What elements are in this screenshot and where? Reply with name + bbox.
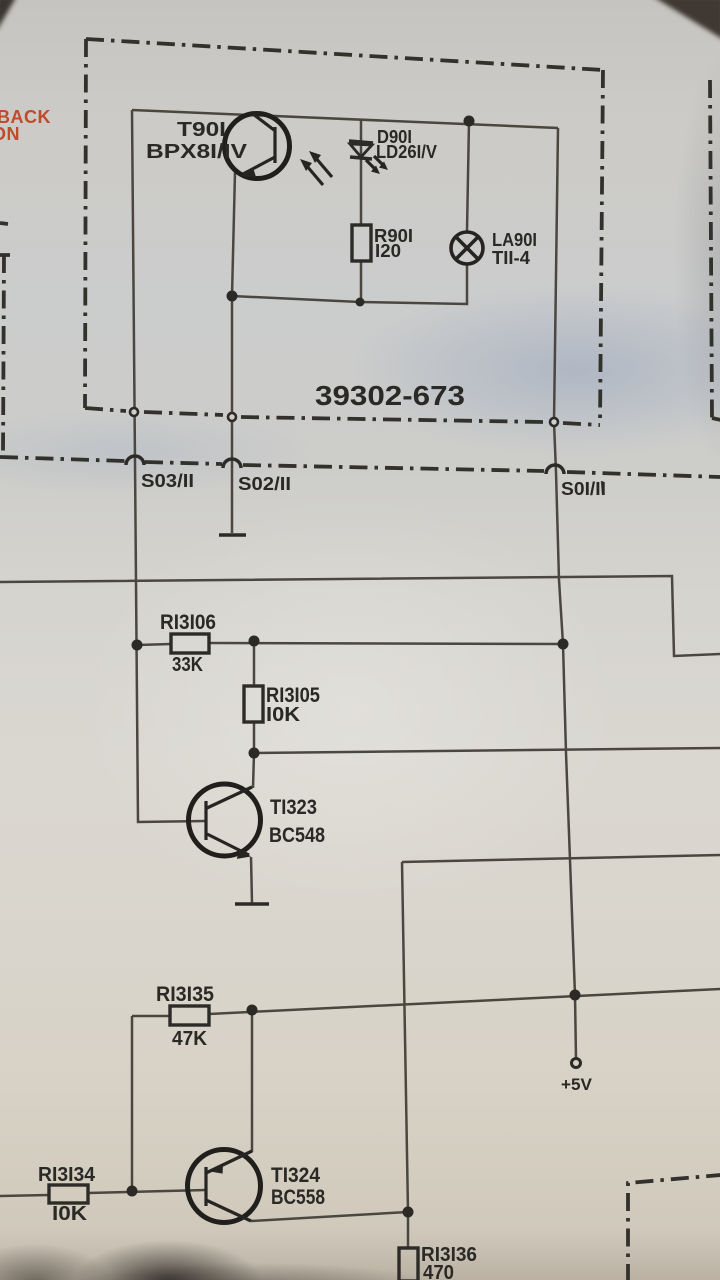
svg-text:BC548: BC548 <box>269 824 325 847</box>
svg-text:ON: ON <box>0 124 20 144</box>
svg-text:TII-4: TII-4 <box>492 248 530 268</box>
svg-text:I20: I20 <box>375 241 401 261</box>
svg-text:RI3I35: RI3I35 <box>156 983 214 1006</box>
svg-text:470: 470 <box>423 1262 454 1280</box>
svg-text:S02/II: S02/II <box>238 473 291 494</box>
svg-text:39302-673: 39302-673 <box>315 380 465 411</box>
svg-text:RI3I06: RI3I06 <box>160 611 216 634</box>
svg-text:BC558: BC558 <box>271 1186 325 1209</box>
svg-text:TI323: TI323 <box>270 796 317 819</box>
svg-text:S0I/II: S0I/II <box>561 478 606 499</box>
svg-text:+5V: +5V <box>561 1075 593 1094</box>
svg-text:RI3I34: RI3I34 <box>38 1164 96 1186</box>
svg-text:S03/II: S03/II <box>141 470 194 491</box>
svg-text:TI324: TI324 <box>271 1164 320 1187</box>
svg-text:T90I: T90I <box>177 119 226 141</box>
svg-text:BPX8I/IV: BPX8I/IV <box>146 141 248 163</box>
svg-text:LA90I: LA90I <box>492 230 537 250</box>
svg-text:I0K: I0K <box>52 1203 88 1225</box>
svg-text:33K: 33K <box>172 654 203 676</box>
svg-text:LD26I/V: LD26I/V <box>376 142 437 162</box>
svg-text:47K: 47K <box>172 1028 208 1050</box>
svg-text:I0K: I0K <box>266 704 301 726</box>
